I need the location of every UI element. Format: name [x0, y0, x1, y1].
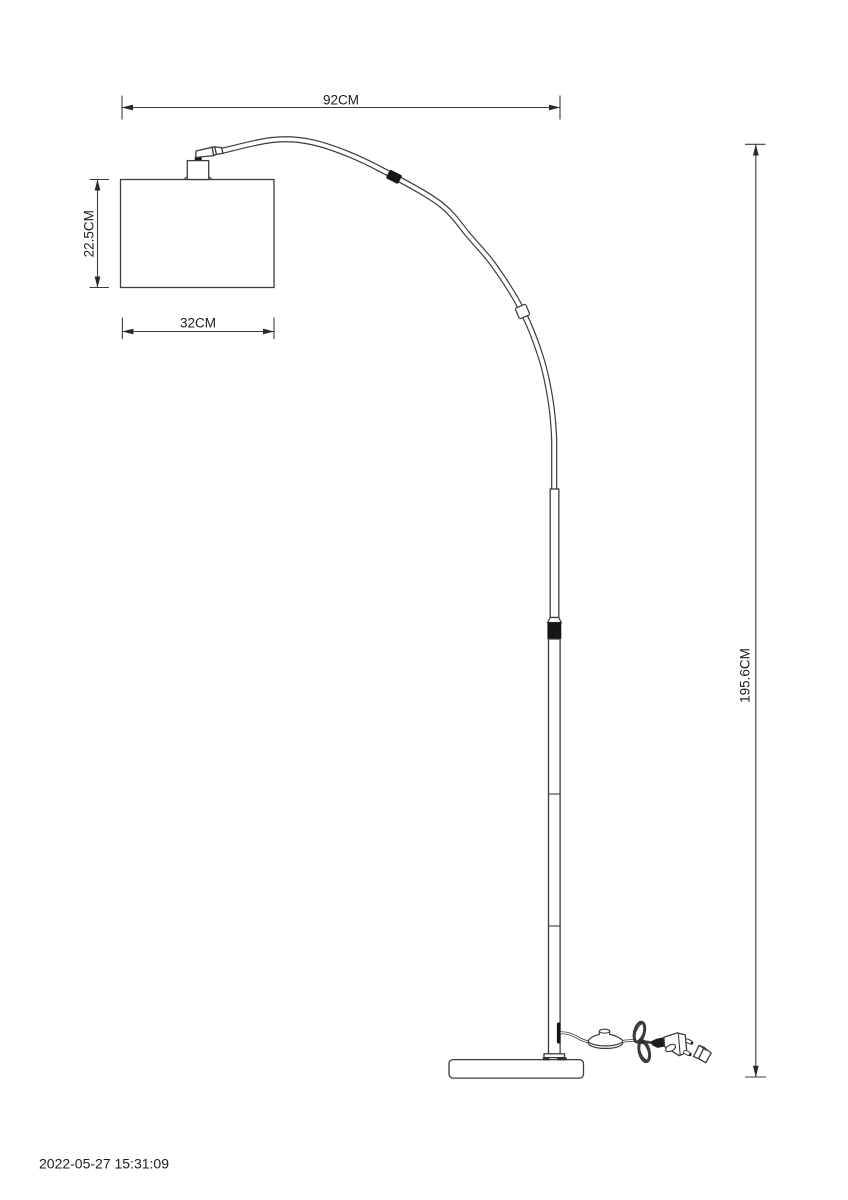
svg-text:22.5CM: 22.5CM: [82, 210, 97, 257]
svg-text:92CM: 92CM: [323, 93, 359, 108]
svg-text:195.6CM: 195.6CM: [738, 648, 753, 703]
svg-text:32CM: 32CM: [180, 316, 216, 331]
svg-text:2022-05-27 15:31:09: 2022-05-27 15:31:09: [39, 1156, 169, 1172]
